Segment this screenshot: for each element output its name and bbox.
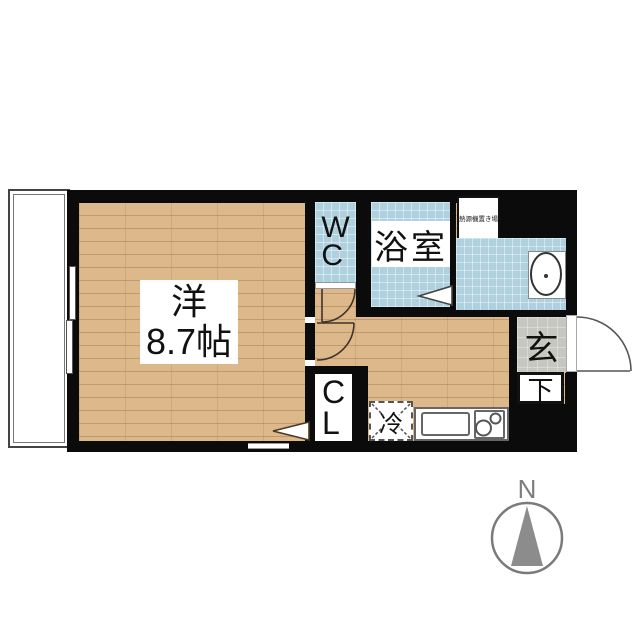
entrance-door-arc — [577, 317, 631, 371]
compass — [492, 503, 562, 573]
floor-plan: WC 浴室 熱源機置き場 玄 下 CL 冷 洋 8.7帖 — [0, 0, 640, 640]
refrigerator-corner-dashes — [372, 404, 410, 438]
room-door-triangle — [273, 422, 309, 440]
wash-basin-icon — [531, 253, 561, 295]
wc-door-arc — [322, 289, 355, 322]
linework-layer — [0, 0, 640, 640]
room-door-arc — [317, 323, 354, 360]
bath-door-triangle — [419, 286, 452, 305]
stove-burners-icon — [476, 414, 501, 436]
